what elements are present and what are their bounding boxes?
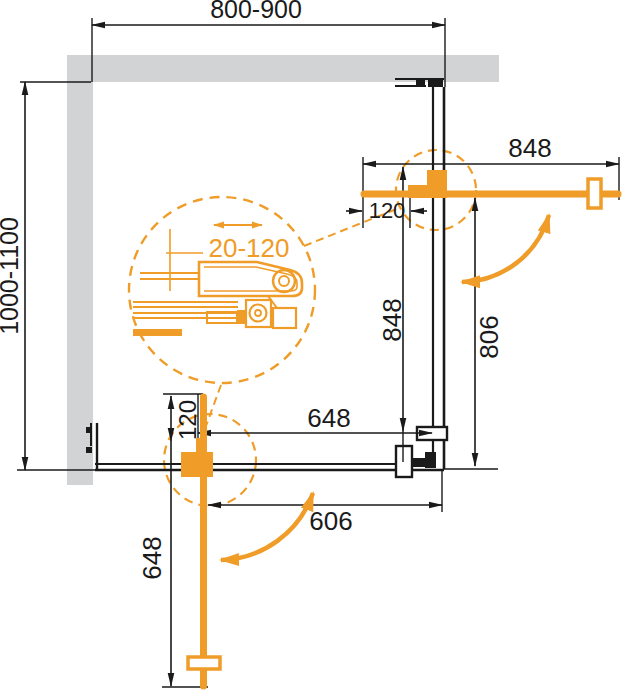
dim-bottom-panel-width-label: 648 xyxy=(307,403,350,433)
dim-right-door-width-label: 848 xyxy=(508,133,551,163)
carriage-stop xyxy=(237,310,246,324)
roller-top-inner xyxy=(279,276,289,286)
drawing-svg: 20-120 xyxy=(0,0,626,696)
connector-diagonal xyxy=(268,296,277,308)
dim-right-opening-height-label: 806 xyxy=(474,315,504,358)
dim-bottom-door-offset-label: 120 xyxy=(174,400,201,440)
swing-arrow-bottom xyxy=(221,493,313,560)
corner-connector xyxy=(412,452,436,468)
wall-bracket-top-block1 xyxy=(416,79,425,86)
roller-bottom-inner xyxy=(255,310,261,316)
door-bottom-pivot-arm xyxy=(196,438,207,453)
roller-bottom-outer xyxy=(250,305,267,322)
glass-clamp-bottom xyxy=(396,446,412,477)
dim-bottom-door-length-label: 648 xyxy=(137,536,167,579)
door-bottom-pivot-block xyxy=(181,452,213,477)
wall-left xyxy=(67,55,93,485)
guide-block xyxy=(273,308,296,328)
fixed-structure xyxy=(86,78,447,477)
technical-drawing-canvas: 20-120 xyxy=(0,0,626,696)
dim-top-width-label: 800-900 xyxy=(210,0,302,23)
detail-leader-bottom xyxy=(206,385,221,426)
dim-bottom-opening-width: 606 xyxy=(208,470,442,536)
door-top-pivot-arm xyxy=(408,185,427,198)
dim-left-height-label: 1000-1100 xyxy=(0,217,23,335)
door-bottom-handle xyxy=(188,657,220,669)
dim-bottom-opening-width-label: 606 xyxy=(309,506,352,536)
dim-right-door-offset: 120 xyxy=(346,193,427,228)
dim-bottom-door-offset: 120 xyxy=(163,394,203,441)
rail-bottom-bar xyxy=(133,329,182,336)
detail-adjustment-range-label: 20-120 xyxy=(209,233,290,263)
wall-bracket-left-block2 xyxy=(86,447,92,453)
wall-bracket-top-block2 xyxy=(428,78,443,87)
dim-bottom-door-length: 648 xyxy=(137,441,208,687)
dim-side-panel-length-label: 848 xyxy=(377,298,407,341)
door-top-pivot-block xyxy=(427,170,447,198)
dim-right-opening-height: 806 xyxy=(444,198,504,469)
door-top-handle xyxy=(588,179,601,208)
dim-bottom-panel-width: 648 xyxy=(198,394,432,440)
wall-bracket-left-block1 xyxy=(86,427,92,433)
slider-mechanism-detail: 20-120 xyxy=(133,225,302,336)
dim-right-door-offset-label: 120 xyxy=(369,198,406,223)
